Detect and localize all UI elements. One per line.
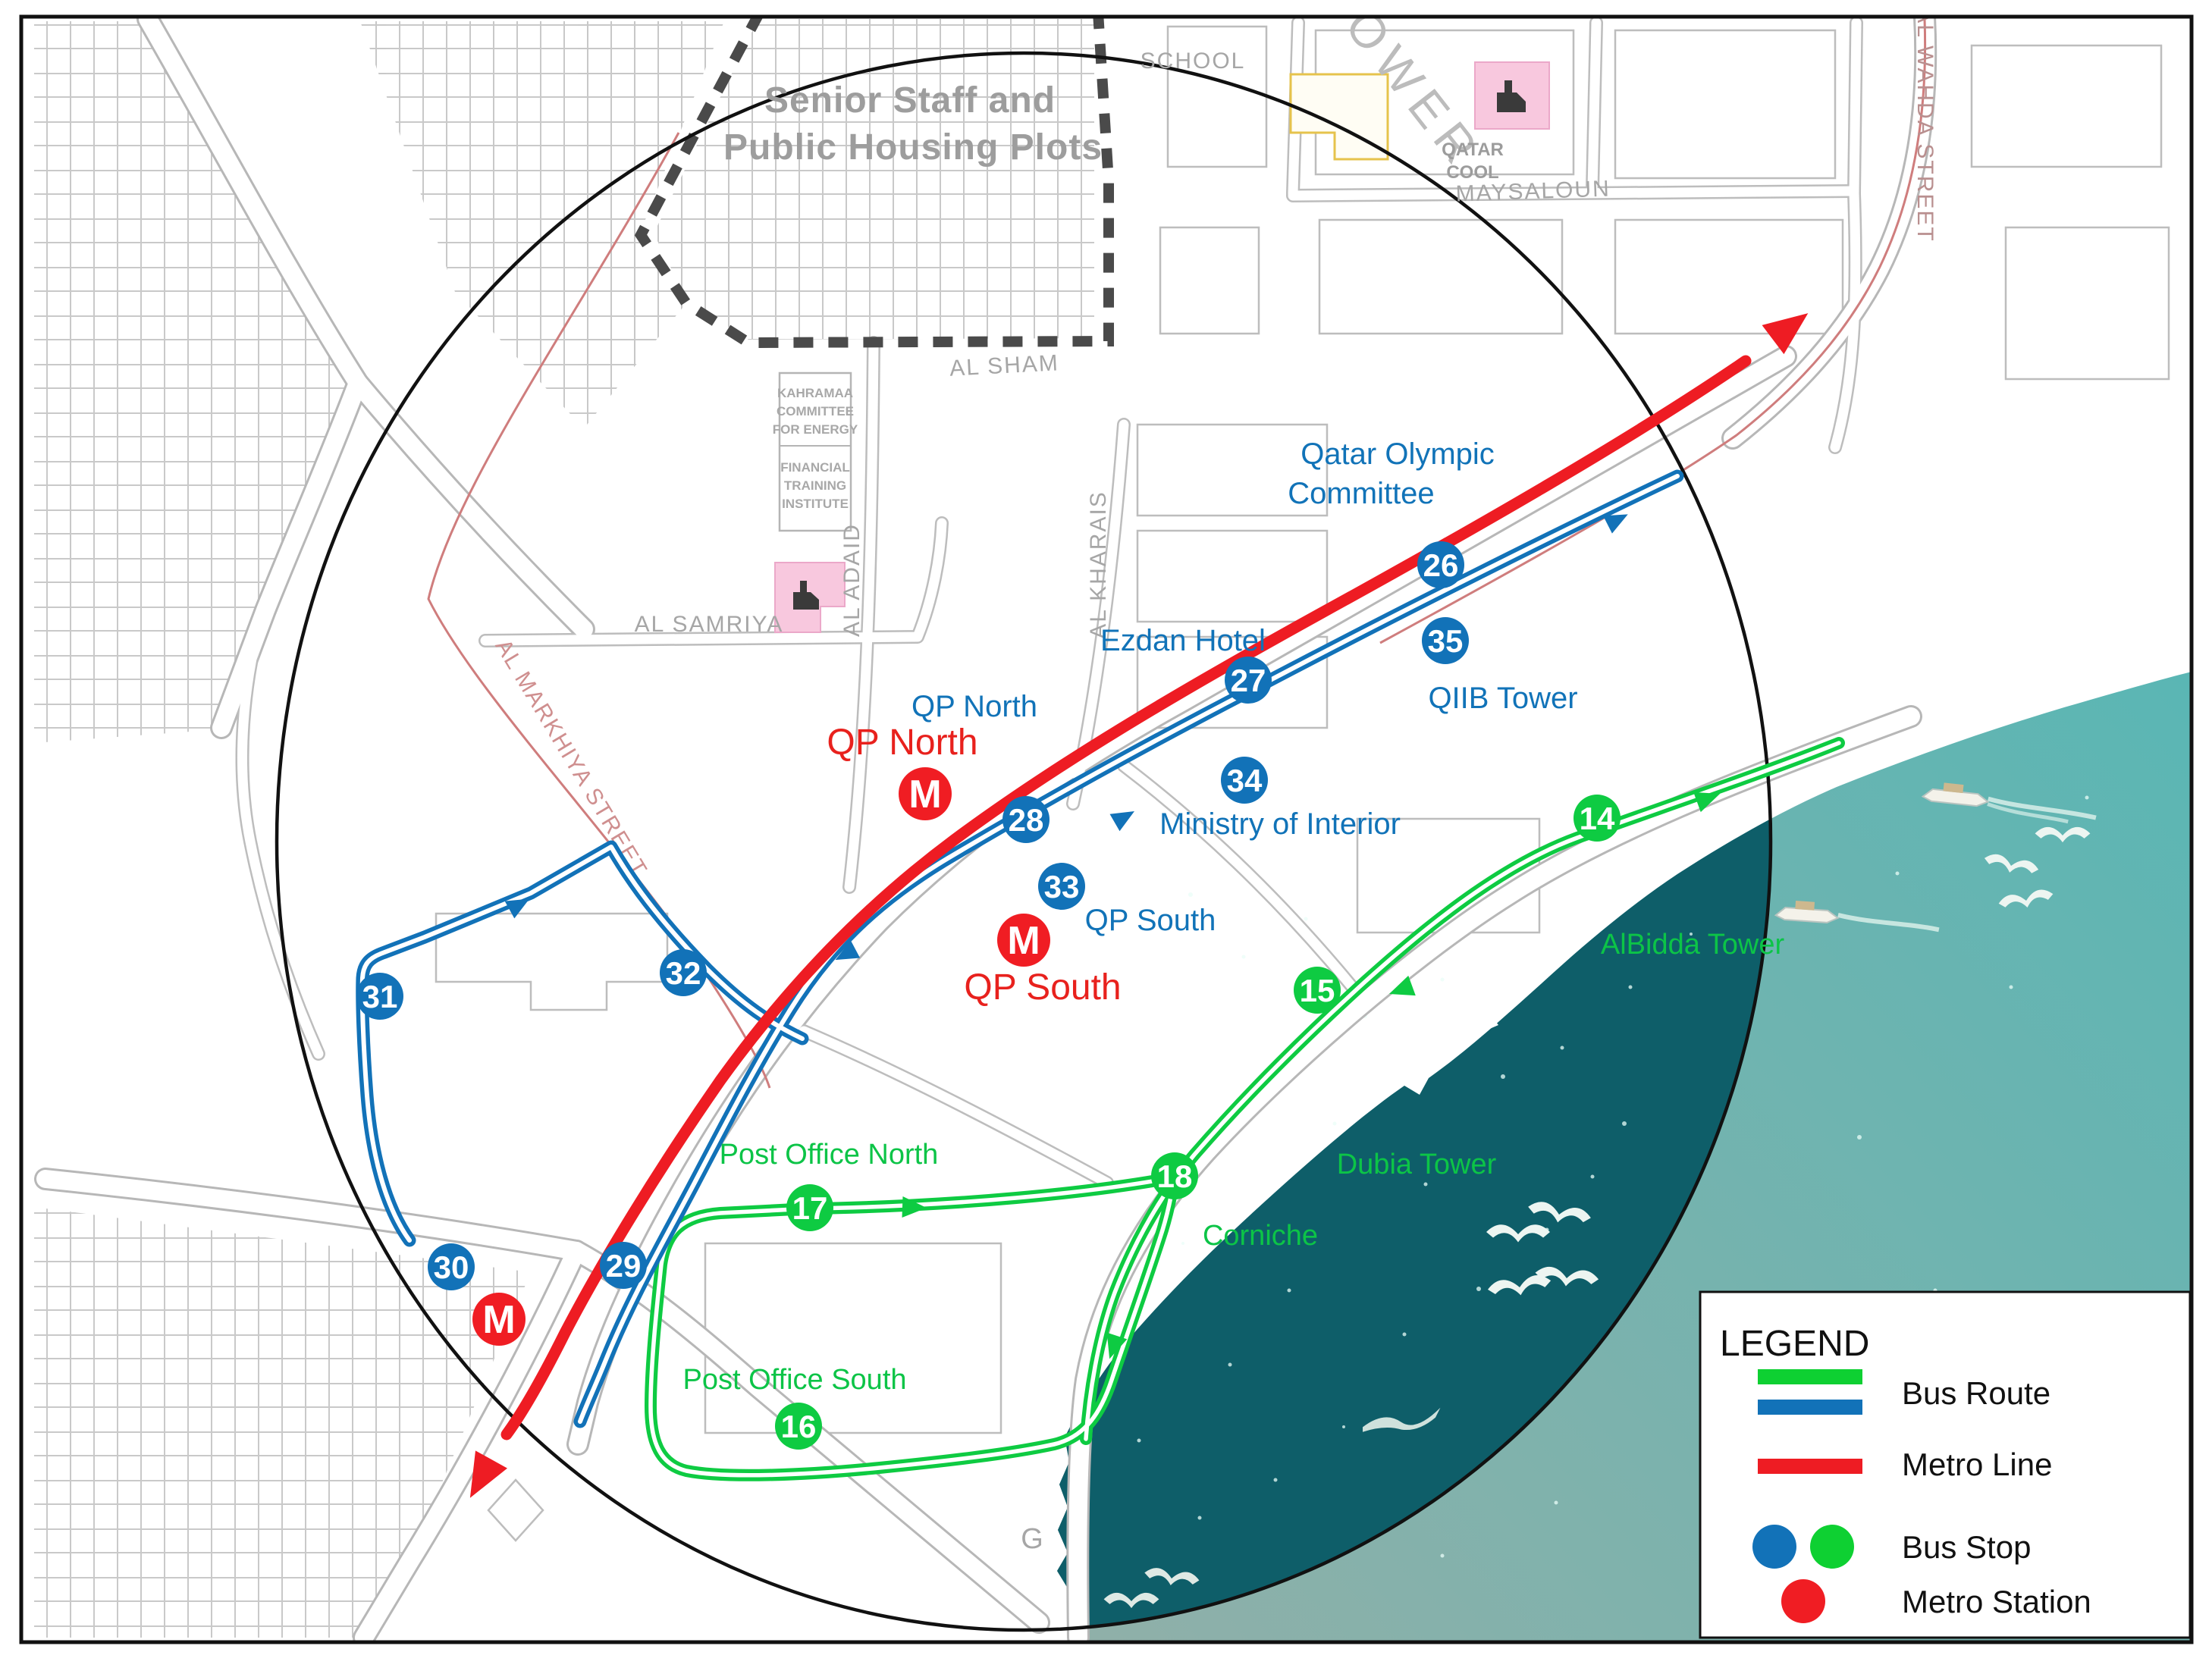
label-qp-north-metro: QP North: [827, 723, 977, 763]
fti-label-1: FINANCIAL: [780, 460, 850, 475]
svg-text:14: 14: [1580, 801, 1615, 836]
bus-stop-15: 15: [1294, 967, 1341, 1014]
label-qp-south-bus: QP South: [1085, 904, 1216, 937]
map-canvas: KAHRAMAA COMMITTEE FOR ENERGY FINANCIAL …: [0, 0, 2212, 1674]
region-label-line2: Public Housing Plots: [723, 127, 1103, 168]
fti-label-3: INSTITUTE: [782, 497, 849, 511]
metro-station-qp-north: M: [899, 767, 952, 820]
bus-stop-27: 27: [1225, 657, 1272, 704]
bus-stop-26: 26: [1417, 541, 1464, 588]
street-al-samriya: AL SAMRIYA: [635, 612, 784, 637]
legend-bus-stop-label: Bus Stop: [1902, 1529, 2031, 1565]
svg-text:18: 18: [1157, 1158, 1193, 1194]
label-post-office-north: Post Office North: [720, 1139, 939, 1171]
svg-text:M: M: [482, 1298, 515, 1342]
svg-text:30: 30: [434, 1249, 469, 1285]
svg-text:15: 15: [1300, 973, 1335, 1008]
fti-label-2: TRAINING: [784, 478, 846, 493]
label-corniche: Corniche: [1203, 1220, 1318, 1252]
bus-stop-34: 34: [1221, 757, 1268, 804]
bus-stop-32: 32: [660, 949, 707, 996]
svg-text:16: 16: [781, 1409, 817, 1444]
bus-stop-17: 17: [786, 1184, 833, 1231]
legend: LEGEND Bus Route Metro Line Bus Stop Met…: [1700, 1292, 2190, 1638]
bus-stop-31: 31: [356, 973, 403, 1020]
metro-station-qp-south: M: [997, 914, 1050, 967]
label-post-office-south: Post Office South: [682, 1364, 906, 1396]
kahramaa-label-3: FOR ENERGY: [773, 422, 858, 437]
svg-text:33: 33: [1044, 869, 1080, 904]
svg-text:17: 17: [792, 1190, 828, 1226]
svg-text:32: 32: [666, 955, 701, 991]
kahramaa-building: KAHRAMAA COMMITTEE FOR ENERGY FINANCIAL …: [773, 373, 858, 531]
legend-blue-route-swatch: [1758, 1400, 1862, 1415]
bus-stop-30: 30: [428, 1243, 475, 1290]
label-qiib-tower: QIIB Tower: [1428, 682, 1577, 715]
svg-text:28: 28: [1009, 802, 1044, 838]
svg-text:27: 27: [1231, 663, 1266, 698]
bus-stop-28: 28: [1002, 796, 1050, 843]
svg-text:26: 26: [1423, 547, 1459, 583]
bus-stop-33: 33: [1038, 863, 1085, 910]
label-qatar-olympic-2: Committee: [1288, 477, 1434, 510]
kahramaa-label-2: COMMITTEE: [777, 404, 854, 418]
label-qp-north-bus: QP North: [911, 690, 1037, 723]
legend-title: LEGEND: [1720, 1324, 1869, 1364]
svg-text:31: 31: [362, 979, 398, 1014]
g-label: G: [1021, 1523, 1045, 1555]
svg-text:29: 29: [606, 1248, 642, 1284]
label-qp-south-metro: QP South: [964, 967, 1121, 1008]
svg-text:35: 35: [1428, 623, 1464, 659]
street-al-adaid: AL ADAID: [839, 523, 864, 637]
legend-metro-station-swatch: [1781, 1579, 1825, 1623]
svg-text:34: 34: [1227, 763, 1263, 798]
label-ministry-of-interior: Ministry of Interior: [1159, 807, 1401, 841]
bus-stop-16: 16: [775, 1403, 822, 1450]
legend-bus-route-label: Bus Route: [1902, 1375, 2050, 1411]
school-label: SCHOOL: [1141, 49, 1246, 74]
legend-metro-line-label: Metro Line: [1902, 1447, 2052, 1482]
svg-text:M: M: [1007, 919, 1040, 963]
bus-stop-29: 29: [600, 1242, 647, 1289]
legend-metro-line-swatch: [1758, 1459, 1862, 1474]
transit-map-figure: KAHRAMAA COMMITTEE FOR ENERGY FINANCIAL …: [0, 0, 2212, 1674]
bus-stop-35: 35: [1422, 617, 1469, 664]
legend-bus-stop-blue-swatch: [1752, 1525, 1796, 1569]
label-qatar-olympic-1: Qatar Olympic: [1301, 437, 1495, 471]
kahramaa-label-1: KAHRAMAA: [777, 386, 853, 400]
street-al-wahda: AL WAHDA STREET: [1912, 8, 1937, 243]
label-ezdan-hotel: Ezdan Hotel: [1100, 624, 1266, 657]
svg-text:M: M: [908, 773, 941, 817]
bus-stop-18: 18: [1151, 1152, 1198, 1199]
metro-station-south: M: [472, 1293, 526, 1346]
label-albidda-tower: AlBidda Tower: [1601, 929, 1785, 961]
legend-metro-station-label: Metro Station: [1902, 1584, 2091, 1619]
qatar-cool-label-1: QATAR: [1442, 139, 1504, 160]
region-label-line1: Senior Staff and: [764, 80, 1056, 121]
label-dubia-tower: Dubia Tower: [1337, 1149, 1497, 1180]
legend-bus-stop-green-swatch: [1810, 1525, 1854, 1569]
legend-green-route-swatch: [1758, 1369, 1862, 1384]
street-al-kharais: AL KHARAIS: [1086, 491, 1111, 639]
qatar-cool-label-2: COOL: [1446, 162, 1498, 183]
bus-stop-14: 14: [1574, 795, 1621, 842]
